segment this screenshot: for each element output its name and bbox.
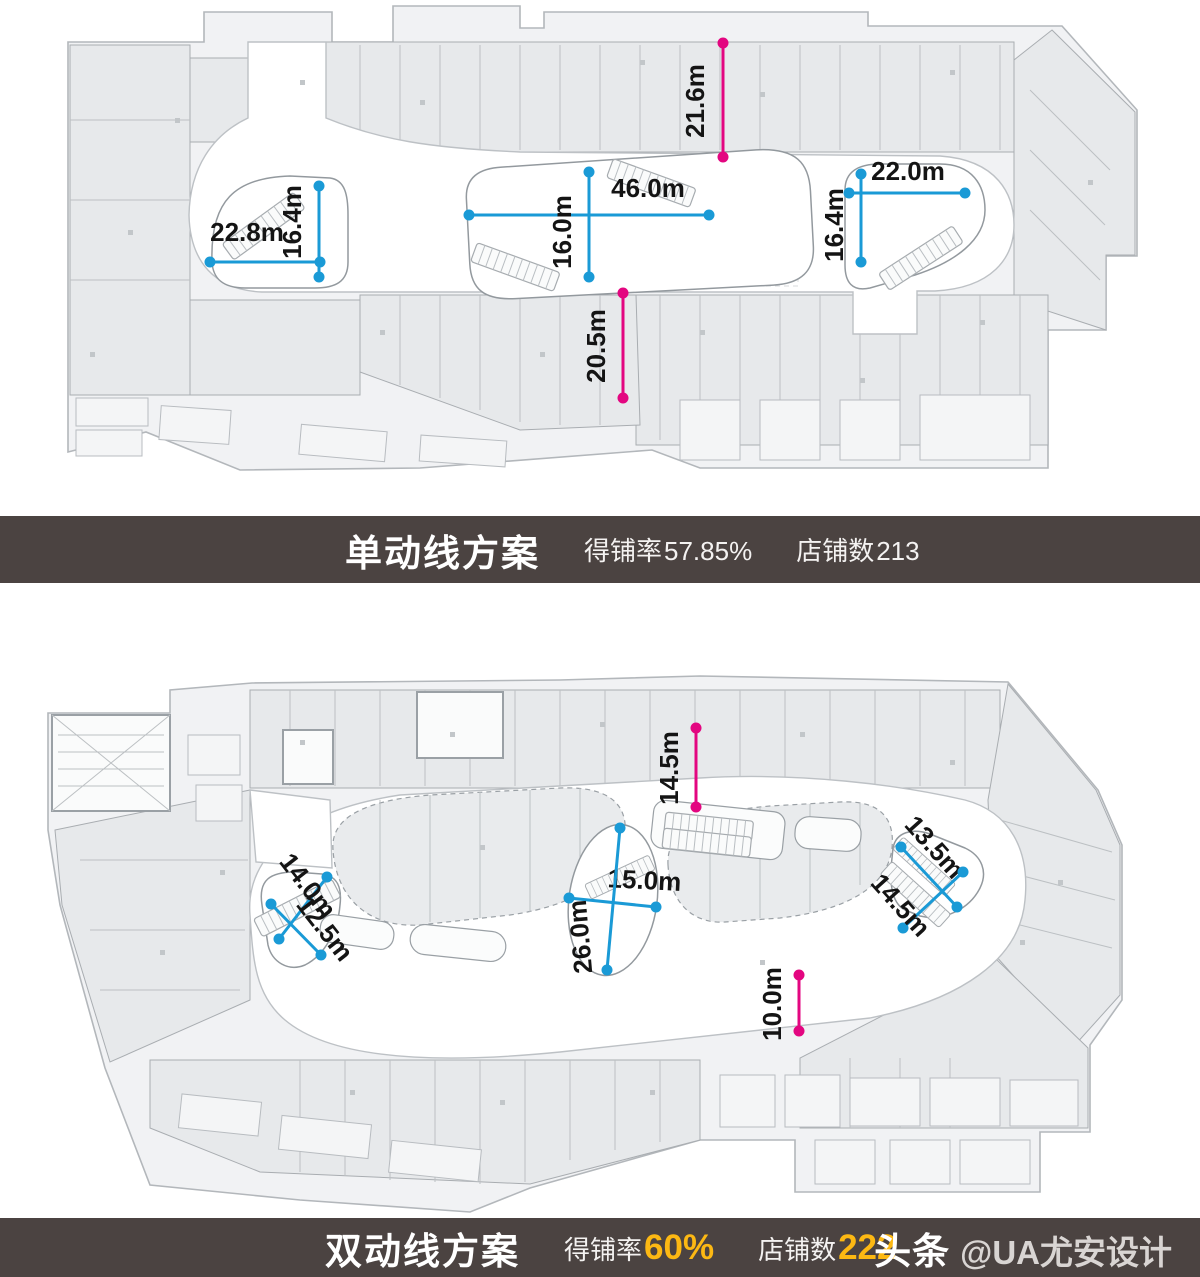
dimension-label: 15.0m xyxy=(607,863,682,897)
dimension-endpoint-dot xyxy=(615,823,626,834)
watermark-brand: 头条 xyxy=(874,1221,950,1275)
dimension-endpoint-dot xyxy=(718,152,729,163)
dimension-endpoint-dot xyxy=(691,802,702,813)
dimension-endpoint-dot xyxy=(464,210,475,221)
dimension-endpoint-dot xyxy=(856,257,867,268)
dimension-endpoint-dot xyxy=(651,902,662,913)
page: 22.8m16.4m46.0m16.0m21.6m20.5m22.0m16.4m… xyxy=(0,0,1200,1277)
watermark: 头条 @UA尤安设计 xyxy=(874,1221,1172,1275)
dimension-endpoint-dot xyxy=(584,272,595,283)
dimension-endpoint-dot xyxy=(602,965,613,976)
plan1-shop-count-value: 213 xyxy=(876,536,919,567)
plan1-shop-rate-value: 57.85% xyxy=(664,536,752,567)
dimension-label: 21.6m xyxy=(680,64,710,138)
dimension-endpoint-dot xyxy=(704,210,715,221)
dimension-endpoint-dot xyxy=(958,867,969,878)
dimension-endpoint-dot xyxy=(266,899,277,910)
lower-plan-svg: 14.5m14.0m12.5m15.0m26.0m13.5m14.5m10.0m xyxy=(0,583,1200,1218)
kiosk xyxy=(794,816,862,853)
plan1-shop-rate-label: 得铺率 xyxy=(584,531,662,568)
dimension-endpoint-dot xyxy=(205,257,216,268)
plan2-shop-rate: 得铺率 60% xyxy=(564,1228,714,1268)
dimension-endpoint-dot xyxy=(618,288,629,299)
plan2-shop-rate-label: 得铺率 xyxy=(564,1230,642,1267)
dimension-endpoint-dot xyxy=(794,1026,805,1037)
dimension-label: 14.5m xyxy=(654,731,684,805)
plan2-shop-rate-value: 60% xyxy=(644,1228,714,1268)
single-loop-floor-plan: 22.8m16.4m46.0m16.0m21.6m20.5m22.0m16.4m xyxy=(0,0,1200,516)
dimension-endpoint-dot xyxy=(960,188,971,199)
double-loop-banner: 双动线方案 得铺率 60% 店铺数 222 头条 @UA尤安设计 xyxy=(0,1218,1200,1277)
dimension-label: 22.8m xyxy=(210,217,284,247)
dimension-endpoint-dot xyxy=(794,970,805,981)
dimension-label: 16.0m xyxy=(547,195,577,269)
dimension-endpoint-dot xyxy=(314,181,325,192)
plan1-shop-count: 店铺数 213 xyxy=(796,531,919,568)
dimension-endpoint-dot xyxy=(718,38,729,49)
plan2-shop-count-label: 店铺数 xyxy=(758,1230,836,1267)
dimension-label: 26.0m xyxy=(562,899,598,975)
dimension-endpoint-dot xyxy=(584,167,595,178)
dimension-endpoint-dot xyxy=(274,934,285,945)
dimension-label: 22.0m xyxy=(871,156,945,186)
dimension-label: 20.5m xyxy=(581,309,611,383)
plan1-shop-rate: 得铺率 57.85% xyxy=(584,531,752,568)
dimension-endpoint-dot xyxy=(952,902,963,913)
single-loop-banner: 单动线方案 得铺率 57.85% 店铺数 213 xyxy=(0,516,1200,583)
dimension-label: 46.0m xyxy=(611,173,685,203)
dimension-endpoint-dot xyxy=(856,169,867,180)
upper-plan-svg: 22.8m16.4m46.0m16.0m21.6m20.5m22.0m16.4m xyxy=(0,0,1200,516)
double-loop-floor-plan: 14.5m14.0m12.5m15.0m26.0m13.5m14.5m10.0m xyxy=(0,583,1200,1218)
watermark-handle: @UA尤安设计 xyxy=(960,1226,1172,1274)
dimension-endpoint-dot xyxy=(314,272,325,283)
dimension-label: 16.4m xyxy=(819,188,849,262)
plan2-title: 双动线方案 xyxy=(325,1221,520,1275)
dimension-label: 10.0m xyxy=(757,967,787,1041)
dimension-label: 16.4m xyxy=(277,185,307,259)
plan1-shop-count-label: 店铺数 xyxy=(796,531,874,568)
dimension-endpoint-dot xyxy=(618,393,629,404)
dimension-endpoint-dot xyxy=(691,723,702,734)
dimension-endpoint-dot xyxy=(896,842,907,853)
plan1-title: 单动线方案 xyxy=(345,523,540,577)
